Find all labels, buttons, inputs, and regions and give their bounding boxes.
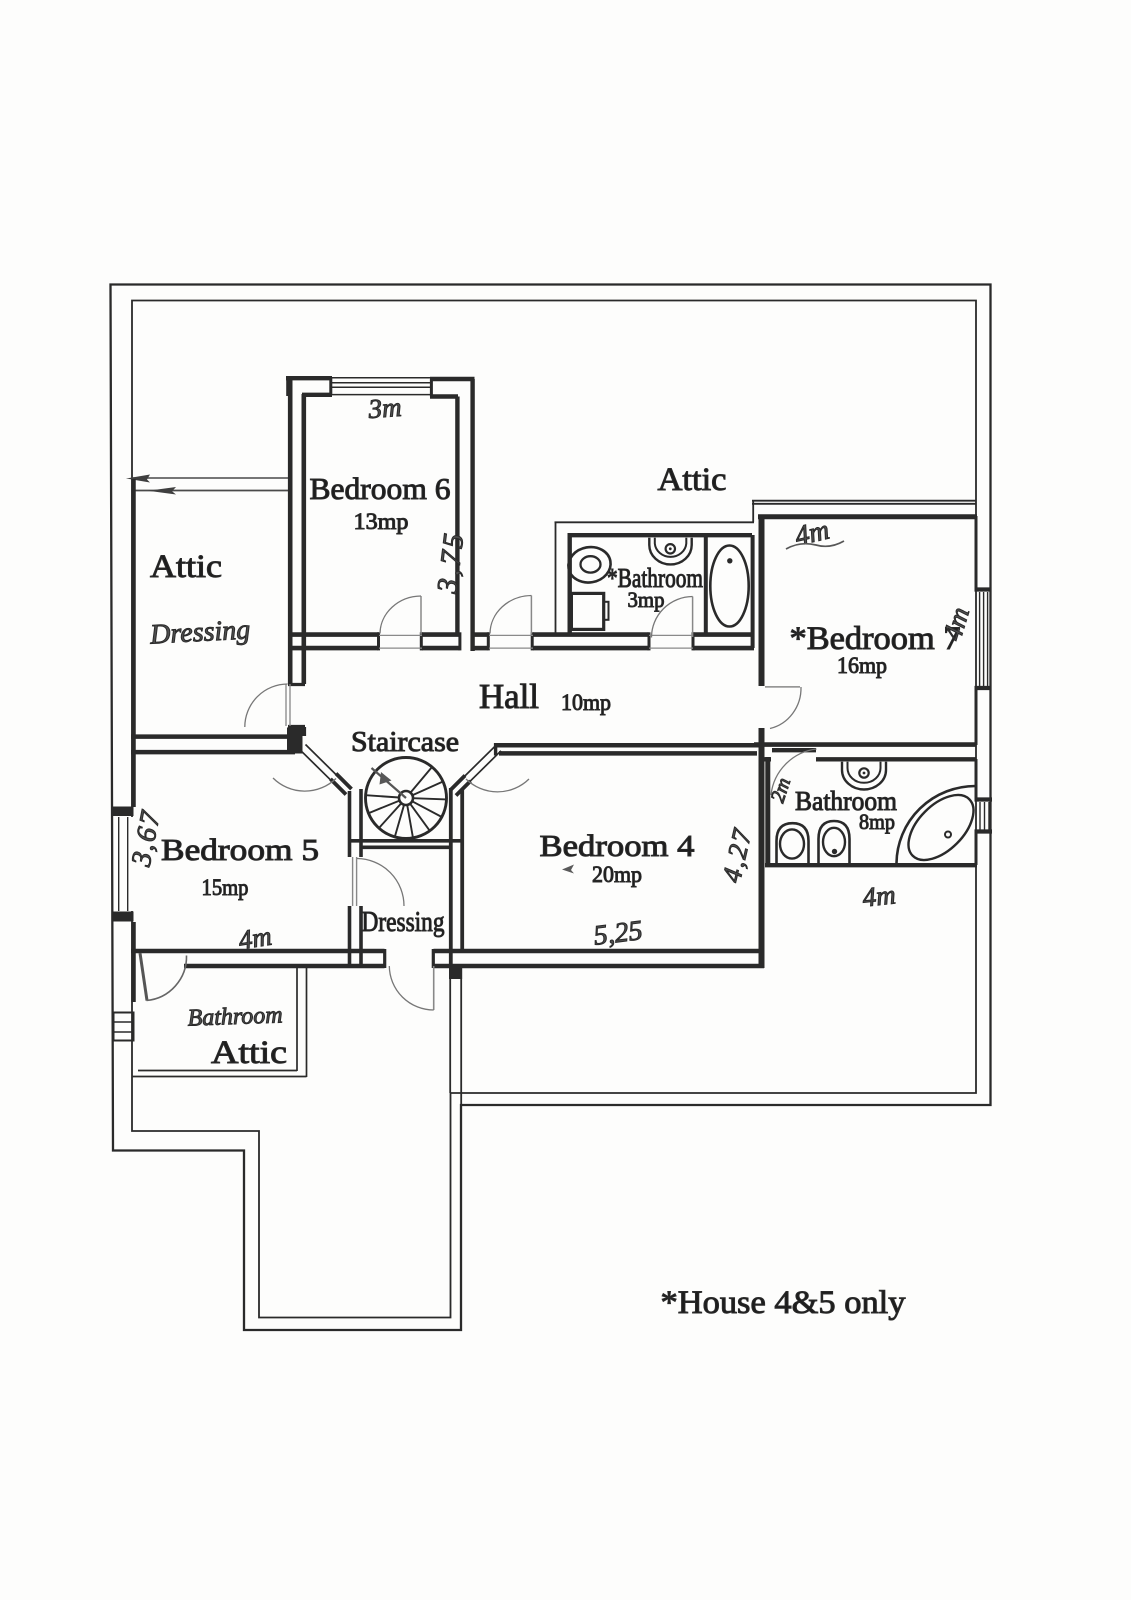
svg-text:Attic: Attic	[658, 462, 727, 498]
svg-text:Hall: Hall	[479, 677, 539, 716]
svg-text:20mp: 20mp	[592, 862, 642, 887]
svg-text:Bedroom 6: Bedroom 6	[310, 471, 451, 506]
svg-text:Staircase: Staircase	[351, 726, 459, 758]
svg-text:10mp: 10mp	[561, 690, 611, 715]
svg-text:8mp: 8mp	[859, 809, 895, 834]
svg-text:15mp: 15mp	[202, 875, 249, 900]
svg-text:Bathroom: Bathroom	[187, 1002, 283, 1031]
svg-text:*Bedroom 7: *Bedroom 7	[790, 621, 961, 657]
svg-text:Attic: Attic	[211, 1035, 287, 1071]
svg-text:4m: 4m	[861, 879, 897, 912]
svg-text:13mp: 13mp	[354, 509, 409, 534]
svg-text:Bedroom 4: Bedroom 4	[540, 828, 696, 863]
svg-text:3mp: 3mp	[628, 587, 665, 612]
svg-text:Dressing: Dressing	[362, 907, 445, 938]
svg-text:Bedroom 5: Bedroom 5	[161, 832, 319, 867]
svg-text:Dressing: Dressing	[148, 614, 251, 650]
svg-text:16mp: 16mp	[837, 653, 887, 678]
svg-text:*House 4&5 only: *House 4&5 only	[661, 1285, 907, 1321]
svg-text:Attic: Attic	[150, 549, 222, 585]
svg-text:3m: 3m	[366, 392, 402, 424]
svg-text:5,25: 5,25	[592, 915, 644, 952]
